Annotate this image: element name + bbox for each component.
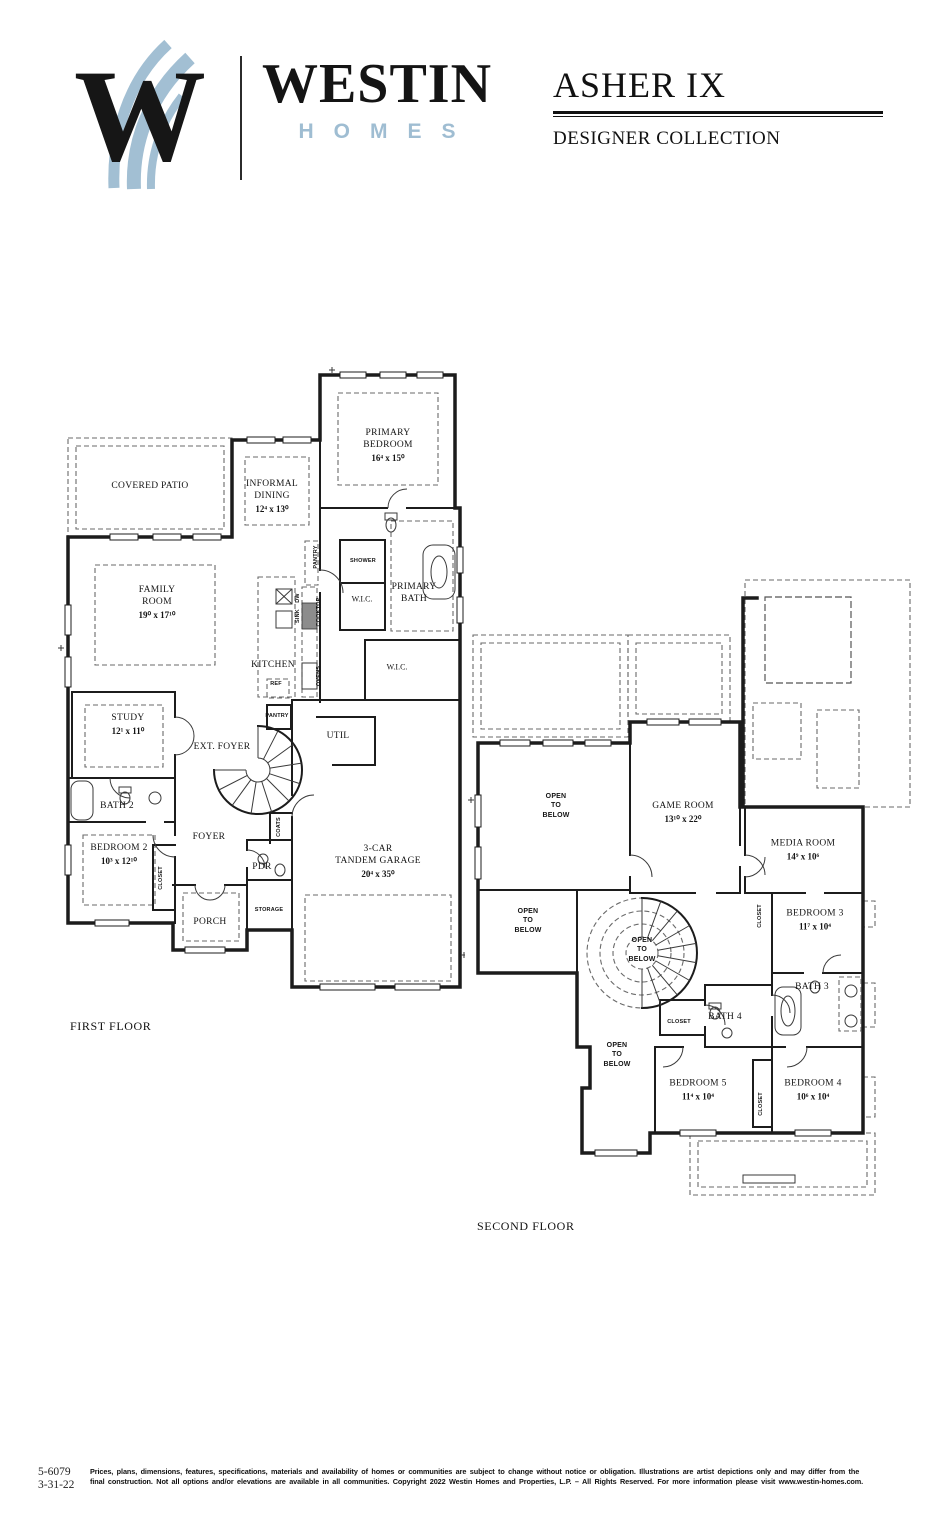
disclaimer-line-1: Prices, plans, dimensions, features, spe… xyxy=(90,1467,906,1477)
second-floor-plan xyxy=(465,555,925,1215)
first-floor-plan xyxy=(55,365,465,1035)
legal-disclaimer: Prices, plans, dimensions, features, spe… xyxy=(90,1467,906,1486)
logo-monogram: W xyxy=(74,42,206,189)
logo-divider xyxy=(240,56,242,180)
plan-date: 3-31-22 xyxy=(38,1479,74,1492)
second-floor-walls xyxy=(468,580,910,1195)
title-rule xyxy=(553,111,883,117)
brand-name: WESTIN xyxy=(260,56,494,112)
floorplan-sheet: W WESTIN HOMES ASHER IX DESIGNER COLLECT… xyxy=(0,0,932,1536)
first-floor-walls xyxy=(58,367,465,990)
plan-id-block: 5-6079 3-31-22 xyxy=(38,1466,74,1491)
second-floor-caption: SECOND FLOOR xyxy=(477,1219,575,1234)
plan-number: 5-6079 xyxy=(38,1466,74,1479)
first-floor-caption: FIRST FLOOR xyxy=(70,1019,151,1034)
brand-block: WESTIN HOMES xyxy=(260,56,494,142)
brand-sub: HOMES xyxy=(260,121,494,142)
title-block: ASHER IX DESIGNER COLLECTION xyxy=(553,66,883,150)
plan-name: ASHER IX xyxy=(553,66,883,106)
collection-subtitle: DESIGNER COLLECTION xyxy=(553,128,883,150)
disclaimer-line-2: final construction. Not all options and/… xyxy=(90,1477,906,1487)
westin-logo-icon: W xyxy=(52,38,234,190)
